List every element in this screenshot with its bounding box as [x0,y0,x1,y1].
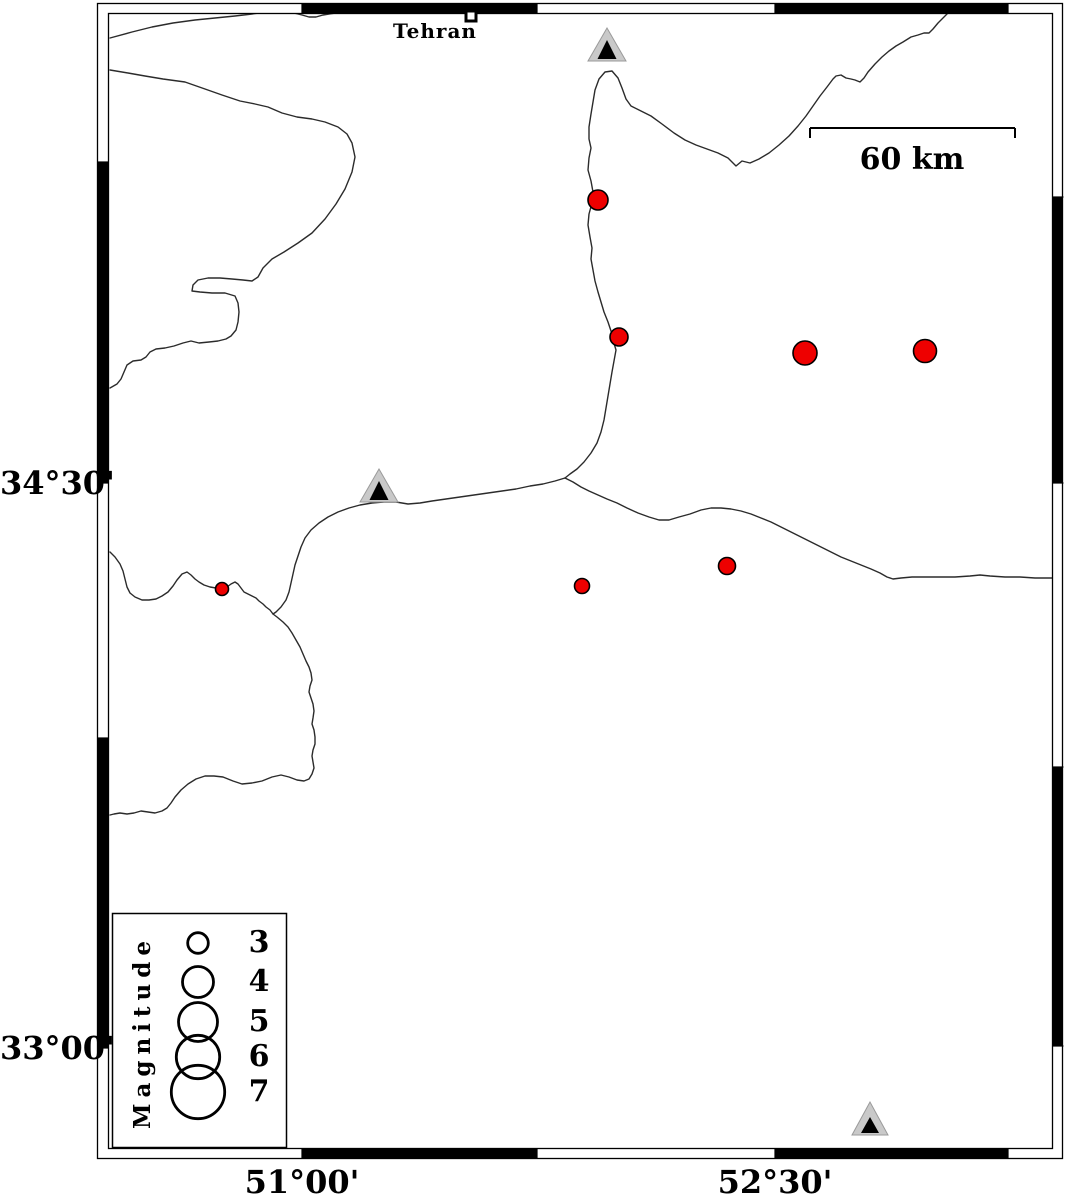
scale-bar [810,128,1015,138]
legend-magnitude-5: 5 [237,1007,281,1037]
earthquake-marker-6 [575,579,590,594]
earthquake-marker-3 [793,341,817,365]
scale-bar-line [810,128,1015,138]
boundary-southwest-province [110,478,565,815]
scale-bar-label: 60 km [812,145,1012,175]
earthquake-marker-7 [216,583,229,596]
boundary-east-province [565,478,1053,579]
city-label-tehran: Tehran [355,21,515,41]
map-canvas [0,0,1066,1198]
legend-magnitude-3: 3 [237,928,281,958]
boundary-lines [110,11,1053,815]
lat-label-33-00: 33°00' [0,1032,88,1064]
station-markers [360,28,888,1135]
boundary-north-province [565,11,950,478]
lon-label-51-00: 51°00' [202,1166,402,1198]
earthquake-markers [216,190,937,596]
earthquake-marker-1 [588,190,608,210]
boundary-west-wiggle [110,552,273,614]
boundary-northwest-short [110,12,266,38]
earthquake-marker-5 [719,558,736,575]
seismicity-map-figure: 34°30' 33°00' 51°00' 52°30' 60 km Tehran… [0,0,1066,1198]
boundary-west-province [110,70,355,388]
lon-label-52-30: 52°30' [675,1166,875,1198]
earthquake-marker-4 [914,340,937,363]
legend-magnitude-7: 7 [237,1077,281,1107]
lat-label-34-30: 34°30' [0,467,88,499]
legend-magnitude-6: 6 [237,1042,281,1072]
legend-title-magnitude: Magnitude [131,912,157,1152]
earthquake-marker-2 [610,328,628,346]
legend-magnitude-4: 4 [237,967,281,997]
